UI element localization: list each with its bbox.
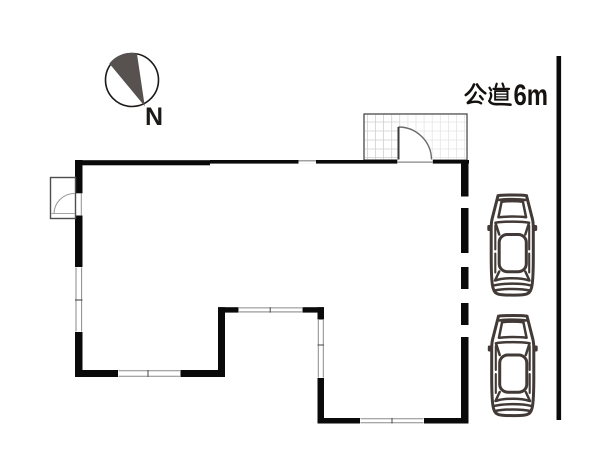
- svg-text:6m: 6m: [514, 79, 549, 112]
- svg-text:N: N: [145, 103, 163, 131]
